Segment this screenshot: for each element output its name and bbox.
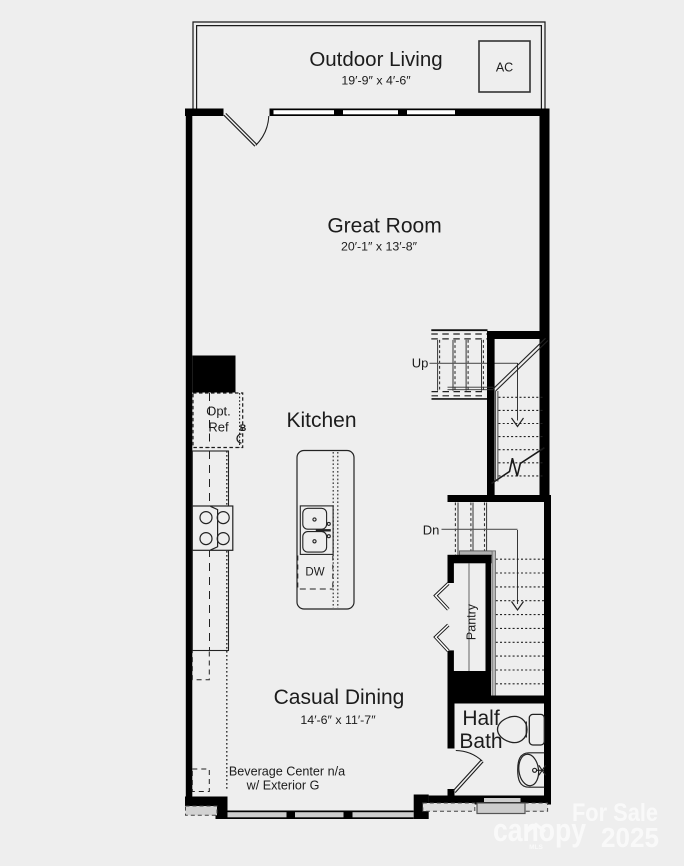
svg-text:14′-6″ x 11′-7″: 14′-6″ x 11′-7″: [300, 713, 376, 727]
svg-text:w/ Exterior G: w/ Exterior G: [246, 779, 320, 793]
svg-text:Up: Up: [412, 356, 429, 371]
svg-text:AC: AC: [496, 61, 513, 75]
svg-text:Half: Half: [462, 707, 500, 730]
svg-text:Beverage Center n/a: Beverage Center n/a: [229, 765, 345, 779]
svg-text:B: B: [240, 423, 247, 433]
svg-text:Opt.: Opt.: [206, 404, 231, 419]
svg-text:2025: 2025: [601, 822, 659, 853]
svg-text:Outdoor Living: Outdoor Living: [309, 48, 442, 71]
svg-text:Dn: Dn: [423, 523, 440, 538]
svg-text:Ref: Ref: [208, 420, 229, 435]
svg-text:canopy: canopy: [493, 812, 586, 848]
svg-text:20′-1″ x 13′-8″: 20′-1″ x 13′-8″: [341, 240, 418, 254]
svg-text:Great Room: Great Room: [327, 215, 441, 238]
svg-text:MLS: MLS: [529, 844, 543, 851]
svg-text:Bath: Bath: [459, 730, 502, 753]
svg-text:DW: DW: [305, 567, 324, 579]
svg-text:Pantry: Pantry: [465, 603, 479, 640]
svg-text:Kitchen: Kitchen: [286, 409, 356, 432]
svg-text:19′-9″ x 4′-6″: 19′-9″ x 4′-6″: [341, 74, 411, 88]
svg-text:Casual Dining: Casual Dining: [274, 686, 405, 709]
